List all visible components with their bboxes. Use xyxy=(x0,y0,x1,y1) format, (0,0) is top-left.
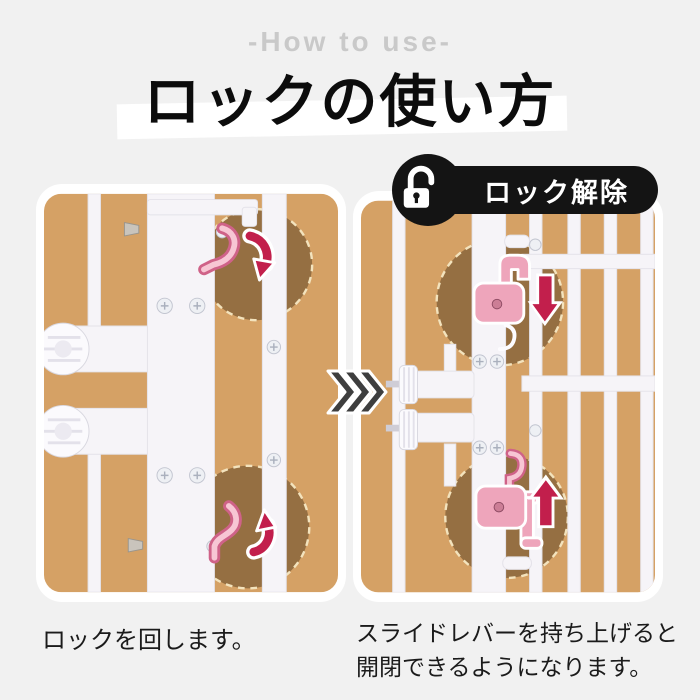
subtitle-how-to-use: -How to use- xyxy=(0,26,700,58)
unlock-badge: ロック解除 xyxy=(421,166,658,214)
gate-lock-rotate-illustration xyxy=(44,192,338,594)
page-title: ロックの使い方 xyxy=(0,56,700,138)
right-photo-panel xyxy=(353,191,663,602)
left-panel-caption: ロックを回します。 xyxy=(42,620,256,655)
unlock-badge-label: ロック解除 xyxy=(484,171,629,210)
unlock-icon xyxy=(398,164,444,210)
right-caption-line-1: スライドレバーを持ち上げると xyxy=(356,616,678,650)
right-caption-line-2: 開閉できるようになります。 xyxy=(356,650,678,684)
left-photo-panel xyxy=(36,184,346,602)
gate-slide-lever-illustration xyxy=(361,199,655,594)
triple-chevron-right-icon xyxy=(326,366,390,418)
right-panel-caption: スライドレバーを持ち上げると 開閉できるようになります。 xyxy=(356,616,678,684)
infographic-page: -How to use- ロックの使い方 xyxy=(0,0,700,700)
